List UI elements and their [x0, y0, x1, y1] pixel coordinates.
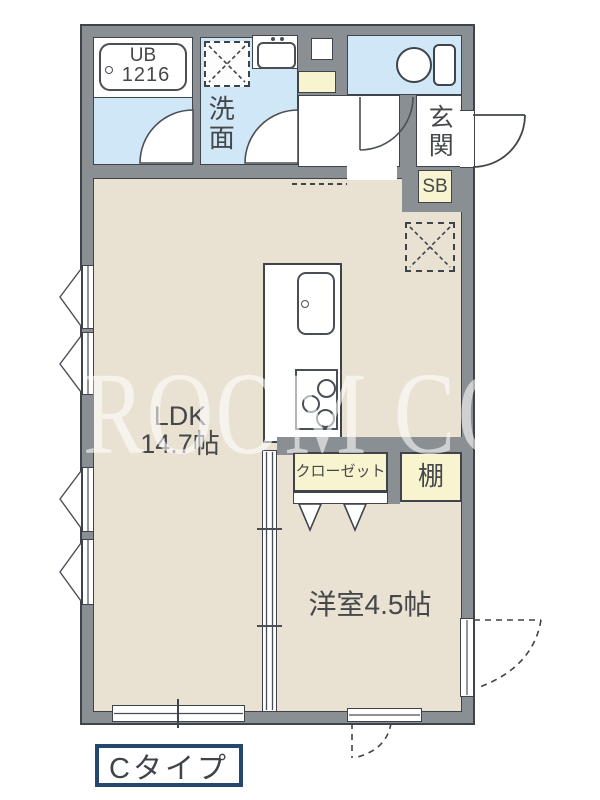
- fridge-space-icon: [405, 222, 455, 272]
- window-bottom-west: [347, 708, 422, 722]
- kitchen-sink-icon: [297, 272, 335, 335]
- bottom-window-swing-icon: [352, 723, 391, 758]
- shoebox-label: SB: [422, 177, 447, 197]
- window-left-4: [82, 539, 94, 605]
- casement-window-icons: [60, 269, 81, 601]
- washroom-label: 洗面: [206, 95, 233, 153]
- entrance-label: 玄関: [426, 104, 452, 160]
- window-right-west: [460, 618, 474, 697]
- hall: [298, 95, 400, 167]
- entrance-door-gap: [460, 110, 474, 168]
- hall-ldk-opening: [347, 164, 397, 180]
- hall-entrance-wall: [400, 95, 416, 167]
- toilet-room: [347, 35, 462, 95]
- type-label: Cタイプ: [109, 745, 229, 787]
- right-window-swing-icon: [474, 620, 541, 688]
- washer-space-icon: [204, 41, 250, 87]
- sliding-door: [262, 450, 277, 712]
- counter-box: [298, 71, 336, 93]
- type-label-box: Cタイプ: [95, 744, 243, 787]
- floorplan-image: UB 1216 洗面 玄関 SB LDK 14.7帖: [0, 0, 600, 800]
- faucet-dot-icon: [105, 66, 113, 74]
- shoebox: SB: [418, 170, 452, 203]
- bathtub-icon: UB 1216: [99, 43, 187, 91]
- window-bottom-ldk: [112, 705, 245, 722]
- front-door-swing-icon: [473, 115, 525, 167]
- window-left-1: [82, 265, 94, 329]
- pipe-space-box: [311, 38, 333, 60]
- washbasin-icon: [252, 35, 298, 69]
- bath-size-label: 1216: [107, 65, 185, 86]
- watermark: ROOM CORE: [83, 346, 600, 482]
- bath-label: UB: [101, 46, 185, 66]
- western-room-label: 洋室4.5帖: [280, 590, 460, 619]
- closet-door: [293, 492, 388, 504]
